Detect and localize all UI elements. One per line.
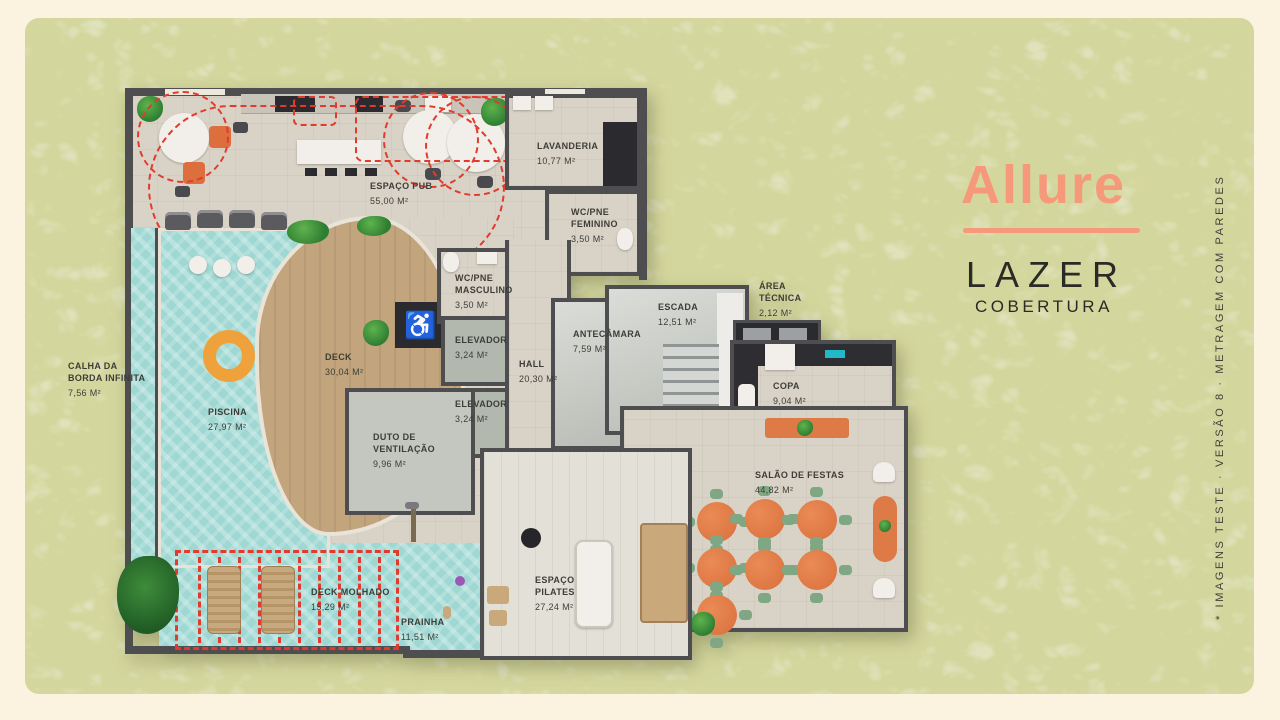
- wet-lounger-icon: [207, 566, 241, 634]
- party-table-icon: [745, 499, 785, 539]
- armchair-icon: [873, 578, 895, 598]
- party-table-icon: [797, 550, 837, 590]
- room-label-prainha: PRAINHA 11,51 M²: [401, 616, 471, 643]
- room-label-piscina: PISCINA 27,97 M²: [208, 406, 268, 433]
- shower-head-icon: [405, 502, 419, 509]
- room-label-salao-de-festas: SALÃO DE FESTAS 44,82 M²: [755, 469, 875, 496]
- dashed-zone-outline: [293, 96, 337, 126]
- room-label-area-tecnica: ÁREA TÉCNICA 2,12 M²: [759, 280, 811, 319]
- plan-title: LAZER: [966, 254, 1127, 296]
- room-label-espaco-pub: ESPAÇO PUB 55,00 M²: [370, 180, 460, 207]
- sink-icon: [477, 252, 497, 264]
- pool-float-ring-icon: [203, 330, 255, 382]
- fridge-icon: [765, 344, 795, 370]
- room-label-elevador-2: ELEVADOR 3,24 M²: [455, 398, 519, 425]
- party-table-icon: [745, 550, 785, 590]
- room-name: ESPAÇO PUB: [370, 181, 432, 191]
- logo-underline: [963, 228, 1140, 233]
- armchair-icon: [873, 462, 895, 482]
- exercise-ball-icon: [521, 528, 541, 548]
- sink-icon: [535, 96, 553, 110]
- pool-step-icon: [213, 259, 231, 277]
- copa-counter-icon: [734, 344, 892, 366]
- room-label-elevador-1: ELEVADOR 3,24 M²: [455, 334, 519, 361]
- room-label-lavanderia: LAVANDERIA 10,77 M²: [537, 140, 627, 167]
- room-label-duto: DUTO DE VENTILAÇÃO 9,96 M²: [373, 431, 451, 470]
- side-table-icon: [487, 586, 509, 604]
- room-label-deck: DECK 30,04 M²: [325, 351, 385, 378]
- room-label-deck-molhado: DECK MOLHADO 15,29 M²: [311, 586, 411, 613]
- cooktop-icon: [825, 350, 845, 358]
- pilates-tower-icon: [640, 523, 688, 623]
- sun-lounger-icon: [165, 212, 191, 230]
- dashed-circle-outline: [137, 91, 229, 183]
- party-table-icon: [797, 500, 837, 540]
- beach-ball-icon: [455, 576, 465, 586]
- sun-lounger-icon: [197, 210, 223, 228]
- sun-lounger-icon: [229, 210, 255, 228]
- room-label-escada: ESCADA 12,51 M²: [658, 301, 718, 328]
- side-chair-icon: [489, 610, 507, 626]
- wet-lounger-icon: [261, 566, 295, 634]
- room-label-wc-feminino: WC/PNE FEMININO 3,50 M²: [571, 206, 627, 245]
- sun-lounger-icon: [261, 212, 287, 230]
- side-note: * IMAGENS TESTE · VERSÃO 8 · METRAGEM CO…: [1214, 100, 1226, 620]
- room-area: 55,00 M²: [370, 195, 460, 207]
- shower-pole-icon: [411, 508, 416, 542]
- plan-subtitle: COBERTURA: [975, 297, 1113, 317]
- poster: ♿: [0, 0, 1280, 720]
- room-label-calha: CALHA DA BORDA INFINITA 7,56 M²: [68, 360, 152, 399]
- floor-plan: ♿: [125, 88, 915, 666]
- room-label-espaco-pilates: ESPAÇO PILATES 27,24 M²: [535, 574, 591, 613]
- pool-step-icon: [237, 256, 255, 274]
- room-label-copa: COPA 9,04 M²: [773, 380, 833, 407]
- room-label-hall: HALL 20,30 M²: [519, 358, 575, 385]
- sink-icon: [513, 96, 531, 110]
- wall-bottom-prainha: [403, 650, 487, 658]
- toilet-icon: [443, 252, 459, 272]
- room-label-wc-masculino: WC/PNE MASCULINO 3,50 M²: [455, 272, 521, 311]
- pool-step-icon: [189, 256, 207, 274]
- allure-logo: Allure: [961, 158, 1126, 212]
- wheelchair-icon: ♿: [404, 312, 436, 338]
- room-label-antecamara: ANTECÂMARA 7,59 M²: [573, 328, 653, 355]
